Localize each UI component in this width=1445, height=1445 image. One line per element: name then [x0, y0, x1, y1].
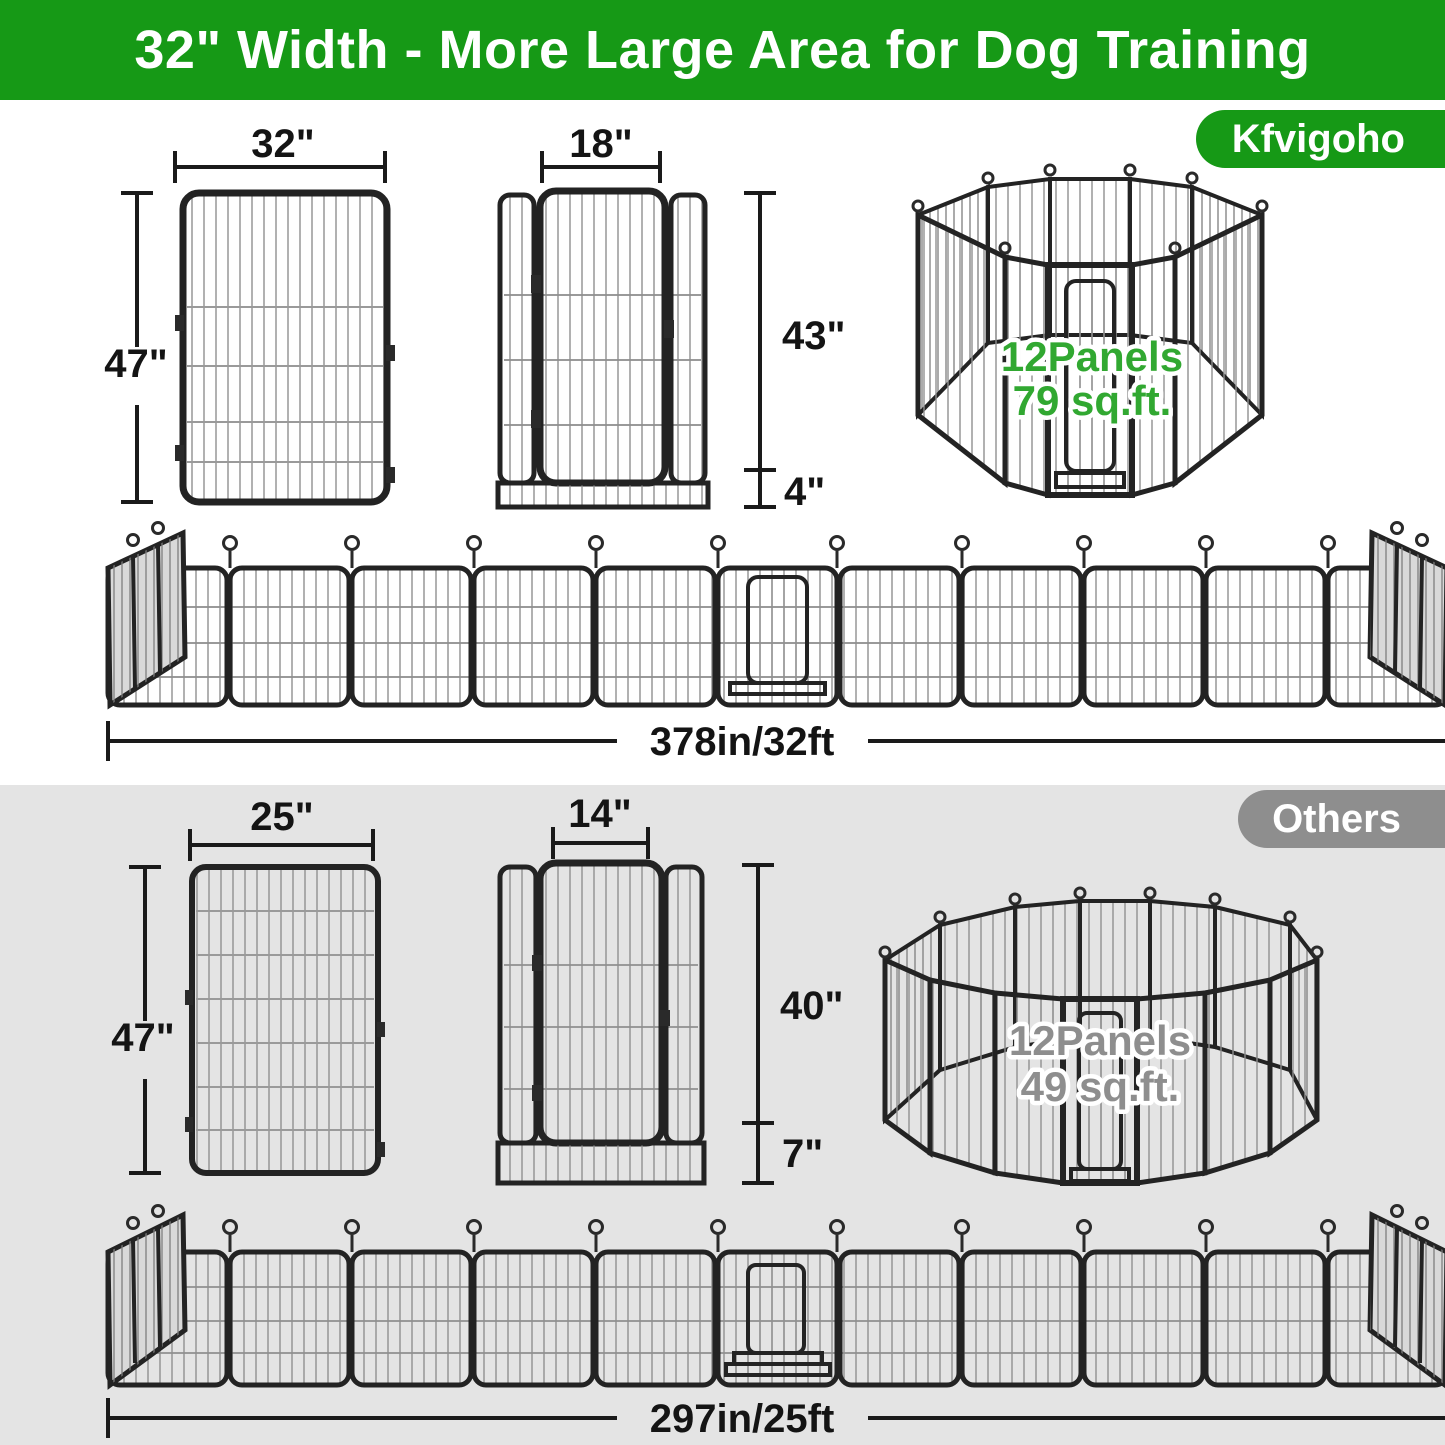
door-panel-drawing [498, 863, 704, 1183]
brand-badge: Kfvigoho [1196, 110, 1445, 168]
door-height-dimension [746, 193, 774, 507]
door-height-label: 43" [782, 314, 845, 358]
panel-width-label: 32" [251, 122, 314, 166]
door-panel-drawing [498, 191, 708, 507]
panel-width-label: 25" [250, 795, 313, 839]
door-bottom-label: 7" [782, 1132, 823, 1176]
others-panel-diagram: 25" 47" [95, 785, 465, 1205]
row-drawing [108, 523, 1445, 706]
row-drawing [108, 1206, 1445, 1386]
pen-panels-label: 12Panels [1001, 333, 1183, 380]
row-length-label: 297in/25ft [650, 1397, 835, 1441]
pen-drawing [913, 165, 1267, 495]
panel-drawing [175, 193, 395, 502]
pen-panels-label: 12Panels [1009, 1017, 1191, 1064]
kfvigoho-pen-diagram: 12Panels 79 sq.ft. [870, 165, 1310, 535]
banner-title: 32" Width - More Large Area for Dog Trai… [134, 19, 1310, 81]
brand-badge-label: Kfvigoho [1232, 117, 1405, 162]
row-length-label: 378in/32ft [650, 720, 835, 764]
infographic-canvas: 32" Width - More Large Area for Dog Trai… [0, 0, 1445, 1445]
kfvigoho-panel-diagram: 32" 47" [90, 115, 480, 530]
panel-height-label: 47" [111, 1016, 174, 1060]
kfvigoho-row-diagram: 378in/32ft [70, 525, 1445, 775]
others-row-diagram: 297in/25ft [70, 1195, 1445, 1445]
panel-drawing [185, 867, 385, 1173]
others-door-panel-diagram: 14" 40" 7" [480, 785, 870, 1225]
door-width-label: 18" [569, 122, 632, 166]
panel-height-label: 47" [104, 342, 167, 386]
banner: 32" Width - More Large Area for Dog Trai… [0, 0, 1445, 100]
door-width-label: 14" [568, 792, 631, 836]
door-height-label: 40" [780, 984, 843, 1028]
others-badge-label: Others [1272, 797, 1401, 842]
door-height-dimension [744, 865, 772, 1183]
door-bottom-label: 4" [784, 470, 825, 514]
kfvigoho-door-panel-diagram: 18" 43" 4" [480, 115, 870, 530]
others-badge: Others [1238, 790, 1445, 848]
pen-area-label: 49 sq.ft. [1021, 1063, 1180, 1110]
pen-area-label: 79 sq.ft. [1013, 377, 1172, 424]
others-pen-diagram: 12Panels 49 sq.ft. [855, 885, 1345, 1215]
